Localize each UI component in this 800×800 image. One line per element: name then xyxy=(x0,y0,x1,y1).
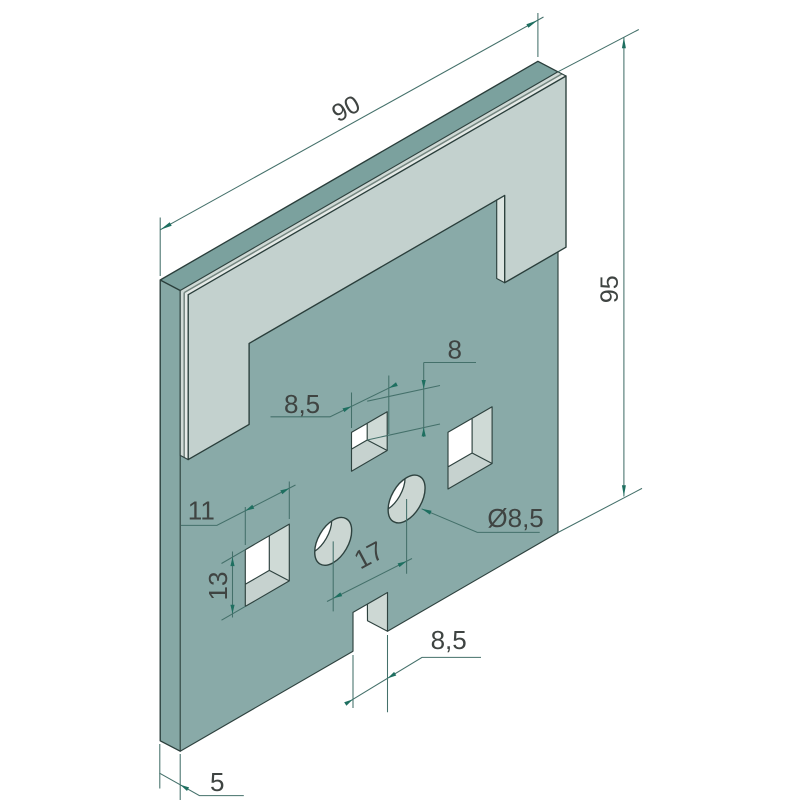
svg-text:8,5: 8,5 xyxy=(284,389,320,419)
svg-text:8,5: 8,5 xyxy=(431,625,467,655)
svg-text:Ø8,5: Ø8,5 xyxy=(487,503,543,533)
svg-text:8: 8 xyxy=(448,335,462,365)
svg-text:5: 5 xyxy=(210,767,224,797)
svg-text:95: 95 xyxy=(596,275,624,303)
svg-text:11: 11 xyxy=(188,495,215,525)
svg-text:13: 13 xyxy=(203,572,233,601)
